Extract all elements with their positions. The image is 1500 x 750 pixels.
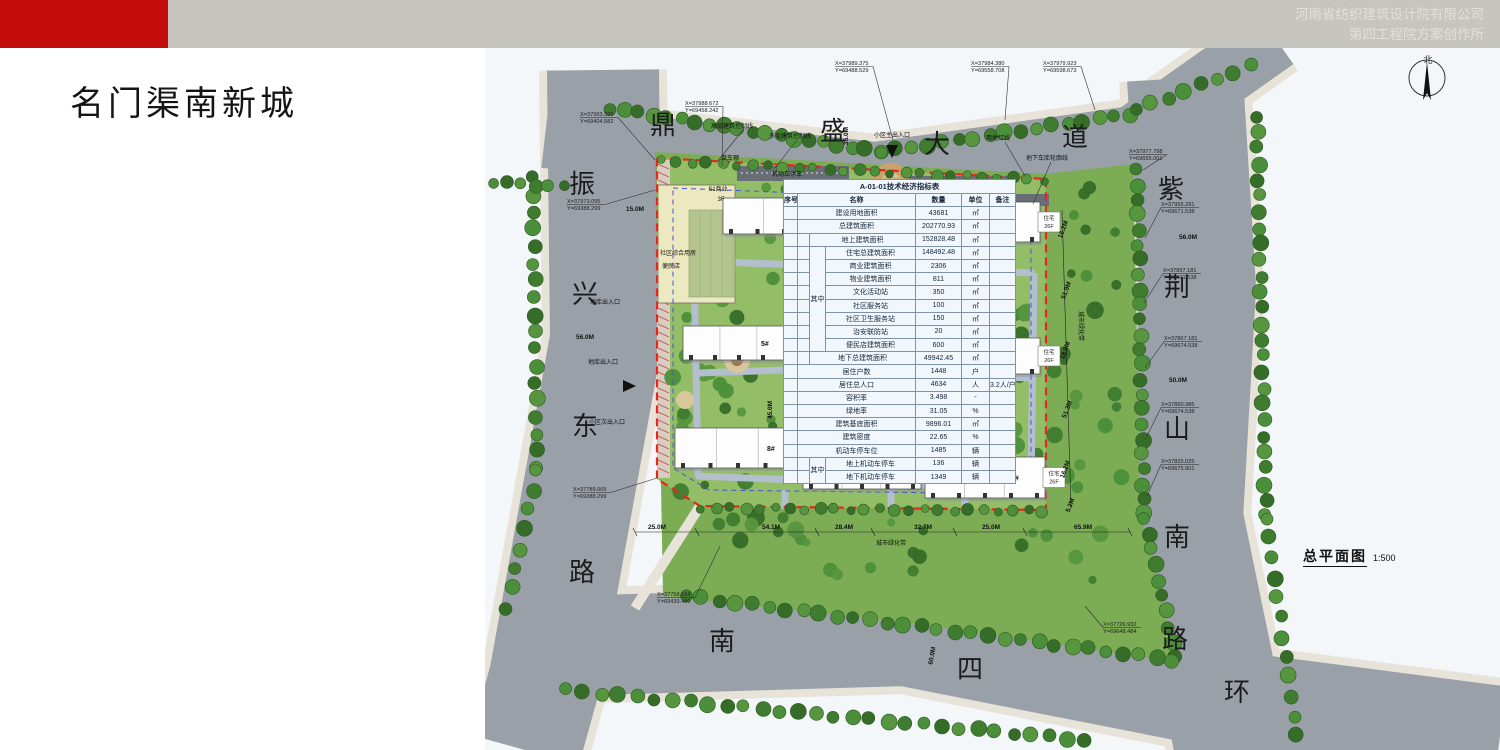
tree-icon <box>863 612 878 627</box>
tree-icon <box>815 502 827 514</box>
road-name-char: 四 <box>957 655 983 684</box>
tree-icon <box>725 502 734 511</box>
tree-icon <box>875 147 887 159</box>
plan-annotation: 地下车库轮廓线 <box>1026 154 1068 162</box>
qty-cell: 31.05 <box>916 405 962 418</box>
dimension-label: 15.0M <box>626 206 644 213</box>
tree-icon <box>1253 235 1269 251</box>
svg-text:Y=69388.299: Y=69388.299 <box>573 494 606 500</box>
qty-cell: 43681 <box>916 207 962 220</box>
tree-icon <box>876 504 885 513</box>
svg-text:Y=69671.538: Y=69671.538 <box>1163 275 1196 281</box>
tree-icon <box>1163 92 1176 105</box>
svg-text:Y=69675.901: Y=69675.901 <box>1161 466 1194 472</box>
qty-cell: 100 <box>916 299 962 312</box>
tree-icon <box>831 610 845 624</box>
tree-icon <box>1175 83 1191 99</box>
col-header: 单位 <box>962 194 990 207</box>
tree-icon <box>529 324 543 338</box>
building-use-label: 住宅 <box>1043 214 1055 222</box>
tree-icon <box>930 624 942 636</box>
tree-icon <box>1256 272 1268 284</box>
garden-tree-icon <box>1067 269 1076 278</box>
tree-icon <box>529 180 543 194</box>
tree-icon <box>1251 111 1263 123</box>
tree-icon <box>699 156 711 168</box>
tree-icon <box>1135 418 1148 431</box>
tree-icon <box>1007 505 1018 516</box>
note-cell <box>990 431 1016 444</box>
qty-cell: 20 <box>916 325 962 338</box>
tree-icon <box>1261 529 1276 544</box>
tree-icon <box>1276 610 1288 622</box>
tree-icon <box>1032 634 1047 649</box>
garden-tree-icon <box>719 403 731 415</box>
tree-icon <box>1133 313 1145 325</box>
note-cell <box>990 220 1016 233</box>
slide: 河南省纺织建筑设计院有限公司 第四工程院方案创作所 名门渠南新城 <box>0 0 1500 750</box>
qty-cell: 136 <box>916 457 962 470</box>
tree-icon <box>898 716 912 730</box>
garden-tree-icon <box>677 407 690 420</box>
tree-icon <box>754 505 764 515</box>
tree-icon <box>1081 641 1095 655</box>
tree-icon <box>994 508 1002 516</box>
tree-icon <box>1156 589 1168 601</box>
garden-tree-icon <box>1113 469 1129 485</box>
tree-icon <box>827 711 839 723</box>
tree-icon <box>713 595 726 608</box>
tree-icon <box>499 603 512 616</box>
plan-caption-title: 总平面图 <box>1303 548 1367 567</box>
qty-cell: 22.65 <box>916 431 962 444</box>
tree-icon <box>1250 174 1264 188</box>
tree-icon <box>1267 571 1283 587</box>
note-cell <box>990 405 1016 418</box>
unit-cell: % <box>962 405 990 418</box>
svg-text:X=37977.798: X=37977.798 <box>1129 149 1162 155</box>
garden-tree-icon <box>766 272 780 286</box>
tree-icon <box>1133 343 1146 356</box>
table-cell <box>798 259 810 272</box>
tree-icon <box>948 625 963 640</box>
tree-icon <box>1255 334 1269 348</box>
tree-icon <box>542 180 554 192</box>
tree-icon <box>631 689 645 703</box>
table-cell <box>798 457 810 470</box>
tree-icon <box>489 178 499 188</box>
tree-icon <box>1253 317 1269 333</box>
qty-cell: 148492.48 <box>916 246 962 259</box>
unit-cell: 户 <box>962 365 990 378</box>
tree-icon <box>979 505 989 515</box>
garden-tree-icon <box>1088 576 1096 584</box>
tree-icon <box>505 579 520 594</box>
note-cell <box>990 339 1016 352</box>
seq-cell <box>784 339 798 352</box>
tree-icon <box>1257 444 1272 459</box>
tree-icon <box>1014 634 1026 646</box>
tree-icon <box>528 240 542 254</box>
name-cell: 地下机动车停车 <box>826 470 916 483</box>
unit-cell: ㎡ <box>962 259 990 272</box>
building-floors-label: 26F <box>1044 358 1054 364</box>
table-row: 建筑密度22.65% <box>784 431 1016 444</box>
tree-icon <box>1259 460 1272 473</box>
name-cell: 建筑基底面积 <box>798 418 916 431</box>
unit-cell: 辆 <box>962 470 990 483</box>
tree-icon <box>1152 575 1166 589</box>
unit-cell: ㎡ <box>962 273 990 286</box>
brand-accent-block <box>0 0 168 48</box>
north-arrow-icon <box>1405 56 1449 104</box>
plan-annotation: 单车棚 <box>721 154 739 162</box>
seq-cell <box>784 273 798 286</box>
note-cell <box>990 233 1016 246</box>
svg-text:X=37789.065: X=37789.065 <box>573 487 606 493</box>
tree-icon <box>790 703 806 719</box>
seq-cell <box>784 259 798 272</box>
dimension-label: 32.7M <box>914 524 932 531</box>
tree-icon <box>609 686 625 702</box>
name-cell: 商业建筑面积 <box>826 259 916 272</box>
tree-icon <box>529 390 545 406</box>
name-cell: 居住户数 <box>798 365 916 378</box>
svg-text:X=37825.025: X=37825.025 <box>1161 459 1194 465</box>
seq-cell <box>784 207 798 220</box>
table-cell <box>798 339 810 352</box>
col-header: 名称 <box>798 194 916 207</box>
tree-icon <box>777 603 792 618</box>
tree-icon <box>772 503 780 511</box>
tree-icon <box>1116 647 1131 662</box>
tree-icon <box>1134 329 1149 344</box>
seq-cell <box>784 418 798 431</box>
tree-icon <box>980 627 996 643</box>
qty-cell: 3.498 <box>916 391 962 404</box>
plan-annotation: 3F <box>717 197 724 203</box>
tree-icon <box>915 618 929 632</box>
tree-icon <box>847 507 855 515</box>
tree-icon <box>1261 513 1273 525</box>
tree-icon <box>530 442 545 457</box>
table-cell <box>798 325 810 338</box>
plan-annotation: 多层建筑控制线 <box>769 132 811 140</box>
table-row: 地下总建筑面积49942.45㎡ <box>784 352 1016 365</box>
garden-tree-icon <box>802 538 810 546</box>
note-cell <box>990 299 1016 312</box>
note-cell <box>990 444 1016 457</box>
name-cell: 容积率 <box>798 391 916 404</box>
dimension-label: 50.0M <box>1169 377 1187 384</box>
name-cell: 绿地率 <box>798 405 916 418</box>
tree-icon <box>895 617 911 633</box>
plan-caption: 总平面图1:500 <box>1303 546 1396 566</box>
seq-cell <box>784 325 798 338</box>
dimension-label: 25.0M <box>982 524 1000 531</box>
note-cell <box>990 391 1016 404</box>
svg-text:Y=69648.484: Y=69648.484 <box>1103 629 1136 635</box>
name-cell: 文化活动站 <box>826 286 916 299</box>
coordinate-callout: X=37989.375Y=69488.529 <box>835 61 873 74</box>
plan-annotation: 便民店 <box>662 262 680 270</box>
name-cell: 物业建筑面积 <box>826 273 916 286</box>
building-id-label: 5# <box>761 341 769 348</box>
tree-icon <box>721 699 735 713</box>
tree-icon <box>528 342 540 354</box>
tree-icon <box>1065 639 1081 655</box>
table-cell <box>798 352 810 365</box>
tree-icon <box>574 684 589 699</box>
tree-icon <box>1131 194 1144 207</box>
road-name-char: 鼎 <box>650 111 676 140</box>
note-cell <box>990 246 1016 259</box>
dimension-label: 28.4M <box>835 524 853 531</box>
tree-icon <box>756 702 771 717</box>
tree-icon <box>1148 556 1164 572</box>
unit-cell: ㎡ <box>962 339 990 352</box>
name-cell: 地下总建筑面积 <box>810 352 916 365</box>
tree-icon <box>886 170 894 178</box>
tree-icon <box>858 504 869 515</box>
tree-icon <box>528 377 541 390</box>
tree-icon <box>741 503 753 515</box>
table-cell <box>798 286 810 299</box>
qty-cell: 202770.93 <box>916 220 962 233</box>
road-name-char: 大 <box>924 130 950 159</box>
tree-icon <box>1136 433 1152 449</box>
company-line-1: 河南省纺织建筑设计院有限公司 <box>1295 5 1484 25</box>
tree-icon <box>862 712 875 725</box>
tree-icon <box>1254 189 1266 201</box>
garden-tree-icon <box>832 569 843 580</box>
table-row: 居住户数1448户 <box>784 365 1016 378</box>
road-name-char: 路 <box>1162 625 1188 654</box>
tree-icon <box>1165 654 1179 668</box>
road-name-char: 环 <box>1224 678 1250 707</box>
tree-icon <box>963 171 971 179</box>
plan-annotation: 机动车停车 <box>772 170 802 178</box>
garden-tree-icon <box>1069 210 1079 220</box>
tree-icon <box>847 612 859 624</box>
table-cell <box>798 246 810 259</box>
table-cell <box>798 312 810 325</box>
tree-icon <box>1258 432 1270 444</box>
garden-tree-icon <box>718 383 733 398</box>
road-name-char: 南 <box>709 627 735 656</box>
tree-icon <box>1280 667 1296 683</box>
table-row: 其中地上机动车停车136辆 <box>784 457 1016 470</box>
tree-icon <box>905 141 918 154</box>
tree-icon <box>1100 646 1112 658</box>
tree-icon <box>1130 179 1145 194</box>
tree-icon <box>648 694 660 706</box>
unit-cell: ㎡ <box>962 352 990 365</box>
tree-icon <box>962 503 974 515</box>
plan-annotation: 用地红线 <box>986 134 1010 142</box>
plan-annotation: 高层建筑控制线 <box>711 122 753 130</box>
tree-icon <box>785 503 796 514</box>
qty-cell: 811 <box>916 273 962 286</box>
seq-cell <box>784 444 798 457</box>
seq-cell <box>784 286 798 299</box>
garden-tree-icon <box>732 532 748 548</box>
svg-text:X=37973.095: X=37973.095 <box>567 199 600 205</box>
tree-icon <box>631 105 644 118</box>
tree-icon <box>517 520 533 536</box>
table-row: 总建筑面积202770.93㎡ <box>784 220 1016 233</box>
tree-icon <box>810 706 824 720</box>
tree-icon <box>670 157 681 168</box>
tree-icon <box>1009 729 1021 741</box>
qty-cell: 49942.45 <box>916 352 962 365</box>
tree-icon <box>1132 224 1146 238</box>
seq-cell <box>784 405 798 418</box>
tree-icon <box>1138 512 1150 524</box>
svg-text:Y=69458.242: Y=69458.242 <box>685 108 718 114</box>
tree-icon <box>1077 733 1091 747</box>
garden-tree-icon <box>787 521 804 538</box>
tree-icon <box>699 697 715 713</box>
unit-cell: ㎡ <box>962 220 990 233</box>
coordinate-callout: X=37973.095Y=69388.299 <box>567 199 605 212</box>
garden-tree-icon <box>1112 402 1122 412</box>
qty-cell: 1448 <box>916 365 962 378</box>
garden-tree-icon <box>1040 529 1053 542</box>
svg-text:Y=69655.001: Y=69655.001 <box>1129 156 1162 162</box>
coordinate-callout: X=37867.181Y=69674.538 <box>1164 336 1202 349</box>
note-cell <box>990 273 1016 286</box>
tree-icon <box>531 429 543 441</box>
company-name: 河南省纺织建筑设计院有限公司 第四工程院方案创作所 <box>1295 5 1484 44</box>
tree-icon <box>1288 727 1303 742</box>
tree-icon <box>515 178 526 189</box>
unit-cell: ㎡ <box>962 299 990 312</box>
tree-icon <box>1130 103 1142 115</box>
unit-cell: ㎡ <box>962 312 990 325</box>
svg-text:Y=69439.480: Y=69439.480 <box>657 599 690 605</box>
garden-tree-icon <box>1098 418 1113 433</box>
coordinate-callout: X=37984.380Y=69558.708 <box>971 61 1009 74</box>
tree-icon <box>1093 111 1107 125</box>
tree-icon <box>888 505 900 517</box>
tree-icon <box>1245 58 1258 71</box>
garden-tree-icon <box>1071 481 1083 493</box>
table-row: 容积率3.498- <box>784 391 1016 404</box>
table-title: A-01-01技术经济指标表 <box>784 180 1016 194</box>
tree-icon <box>685 694 698 707</box>
unit-cell: ㎡ <box>962 418 990 431</box>
header-bar: 河南省纺织建筑设计院有限公司 第四工程院方案创作所 <box>0 0 1500 48</box>
building-floors-label: 26F <box>1044 224 1054 230</box>
tree-icon <box>773 706 786 719</box>
svg-text:Y=69671.538: Y=69671.538 <box>1161 209 1194 215</box>
tree-icon <box>964 626 977 639</box>
seq-cell <box>784 365 798 378</box>
garden-tree-icon <box>887 518 895 526</box>
tree-icon <box>1131 268 1144 281</box>
tree-icon <box>1194 76 1208 90</box>
coordinate-callout: X=37758.164Y=69439.480 <box>657 592 695 605</box>
seq-cell <box>784 299 798 312</box>
tree-icon <box>530 464 542 476</box>
coordinate-callout: X=37789.065Y=69388.299 <box>573 487 611 500</box>
tree-icon <box>688 159 697 168</box>
tree-icon <box>1014 125 1028 139</box>
svg-text:X=37955.291: X=37955.291 <box>1161 202 1194 208</box>
svg-text:Y=69598.673: Y=69598.673 <box>1043 68 1076 74</box>
name-cell: 机动车停车位 <box>798 444 916 457</box>
plan-annotation: 小区主出入口 <box>874 131 910 139</box>
building-id-label: 8# <box>767 446 775 453</box>
qty-cell: 4634 <box>916 378 962 391</box>
coordinate-callout: X=37955.291Y=69671.538 <box>1161 202 1199 215</box>
dimension-label: 65.9M <box>1074 524 1092 531</box>
tree-icon <box>528 272 543 287</box>
coordinate-callout: X=37977.798Y=69655.001 <box>1129 149 1167 162</box>
seq-cell <box>784 220 798 233</box>
tree-icon <box>1134 446 1148 460</box>
tree-icon <box>1225 66 1240 81</box>
tree-icon <box>904 506 914 516</box>
tree-icon <box>1212 73 1224 85</box>
tree-icon <box>1043 729 1056 742</box>
tree-icon <box>1256 300 1269 313</box>
seq-cell <box>784 233 798 246</box>
qty-cell: 350 <box>916 286 962 299</box>
tree-icon <box>525 220 541 236</box>
tree-icon <box>1138 492 1151 505</box>
tree-icon <box>808 163 816 171</box>
tree-icon <box>1253 223 1266 236</box>
tree-icon <box>748 160 759 171</box>
road-name-char: 道 <box>1062 123 1088 152</box>
plan-annotation: 社区综合用房 <box>660 249 696 257</box>
tree-icon <box>1142 95 1157 110</box>
tree-icon <box>764 161 773 170</box>
tree-icon <box>1021 174 1031 184</box>
plan-annotation: 城市绿化带 <box>876 539 906 547</box>
tree-icon <box>1108 110 1120 122</box>
tree-icon <box>971 721 987 737</box>
seq-cell <box>784 431 798 444</box>
tree-icon <box>1159 603 1174 618</box>
plan-caption-scale: 1:500 <box>1373 553 1396 563</box>
dimension-label: 25.0M <box>648 524 666 531</box>
tree-icon <box>1132 648 1145 661</box>
tree-icon <box>1139 463 1151 475</box>
building-floors-label: 26F <box>1049 480 1059 486</box>
tree-icon <box>1133 373 1147 387</box>
table-row: 绿地率31.05% <box>784 405 1016 418</box>
tree-icon <box>1047 639 1060 652</box>
unit-cell: 人 <box>962 378 990 391</box>
tree-icon <box>513 543 527 557</box>
tree-icon <box>527 291 540 304</box>
plan-annotation: 城市绿化带 <box>1077 311 1085 341</box>
road-name-char: 山 <box>1164 415 1190 444</box>
garden-tree-icon <box>1015 538 1029 552</box>
unit-cell: % <box>962 431 990 444</box>
table-cell <box>798 299 810 312</box>
garden-tree-icon <box>1080 225 1090 235</box>
svg-text:Y=69674.538: Y=69674.538 <box>1161 409 1194 415</box>
plan-annotation: 地库出入口 <box>588 358 618 366</box>
svg-text:X=37984.380: X=37984.380 <box>971 61 1004 67</box>
tree-icon <box>657 156 665 164</box>
tree-icon <box>800 506 809 515</box>
note-cell <box>990 207 1016 220</box>
